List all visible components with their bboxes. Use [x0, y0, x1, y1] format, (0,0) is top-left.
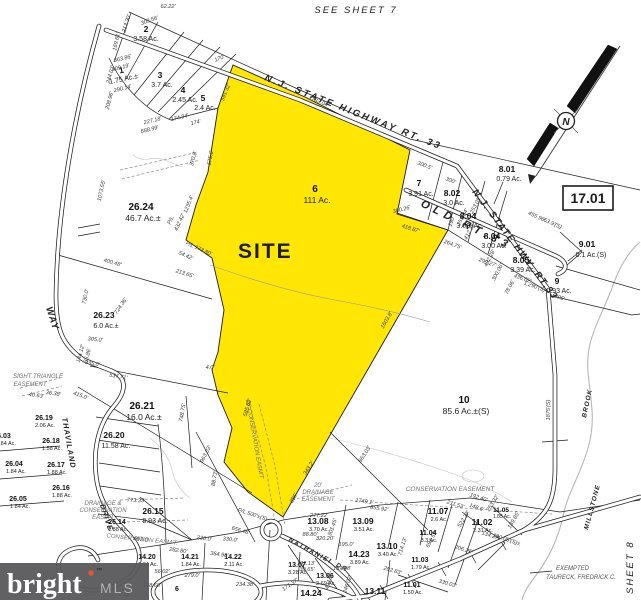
dim-label: 88.80': [302, 532, 318, 538]
parcel-p26-23-lot: 26.23: [93, 310, 115, 320]
parcel-p6-ac: 111 Ac.: [303, 195, 330, 205]
parcel-p26-05-ac: 1.84 Ac.: [10, 504, 30, 510]
drainage-cons-easement-label1: DRAINAGE &: [84, 501, 121, 507]
inset-box-17-01: 17.01: [563, 186, 613, 210]
parcel-p11-03-ac: 1.79 Ac.: [411, 565, 431, 571]
parcel-p8-05-lot: 8.05: [513, 255, 530, 265]
parcel-p26-19-ac: 2.06 Ac.: [35, 423, 55, 429]
parcel-p8-01-lot: 8.01: [499, 164, 516, 174]
parcel-p11-07-ac: 2.6 Ac.: [431, 517, 448, 523]
parcel-p26-04-lot: 26.04: [5, 461, 23, 468]
parcel-p5-lot: 5: [201, 93, 206, 103]
parcel-p11-03-lot: 11.03: [411, 557, 428, 564]
parcel-p13-10-lot: 13.10: [376, 541, 398, 551]
parcel-p14-23-ac: 3.89 Ac.: [350, 560, 370, 566]
parcel-p8-04b-ac: 3.00 Ac.: [481, 243, 506, 250]
inset-box-label: 17.01: [570, 190, 605, 206]
parcel-p14-22-ac: 2.11 Ac.: [224, 562, 244, 568]
parcel-p26-05-lot: 26.05: [9, 496, 27, 503]
dim-label: 56.02': [154, 569, 170, 575]
watermark-mls-text: MLS: [100, 580, 135, 596]
exempted-note-line1: EXEMPTED: [556, 566, 590, 572]
see-sheet-8-label: SEE SHEET 8: [625, 540, 636, 600]
parcel-p26-03-ac: 1.84 Ac.: [0, 441, 16, 447]
tax-map-page: N 17.01 SEE SHEET 7 SEE SHEET 8 SITE N.J…: [0, 0, 641, 600]
parcel-p13-10-ac: 3.40 Ac.: [378, 552, 398, 558]
parcel-p2-ac: 3.58 Ac.: [133, 36, 158, 43]
parcel-p11-05-lot: 11.05: [493, 507, 509, 514]
north-arrow-n-label: N: [562, 117, 570, 128]
dim-label: 4.0': [206, 365, 216, 371]
parcel-p26-16-lot: 26.16: [52, 485, 70, 492]
parcel-p5-ac: 2.4 Ac.: [194, 105, 215, 112]
parcel-p26-16-ac: 1.88 Ac.: [52, 493, 72, 499]
parcel-p26-18-lot: 26.18: [42, 438, 60, 445]
parcel-p8-02-lot: 8.02: [444, 188, 461, 198]
parcel-p26-17-lot: 26.17: [47, 462, 65, 469]
parcel-p26-04-ac: 1.84 Ac.: [6, 469, 26, 475]
drain20-easement-label1: 20': [313, 483, 323, 489]
watermark-brand-text: bright: [7, 569, 82, 600]
parcel-p11-05-ac: 1.85 Ac.: [493, 514, 511, 520]
parcel-p26-14-ac: 1.88 Ac.: [108, 527, 128, 533]
site-label: SITE: [238, 240, 293, 263]
parcel-p9-01-lot: 9.01: [579, 239, 596, 249]
parcel-p3-lot: 3: [158, 70, 163, 80]
sight-triangle-easement-label: SIGHT TRIANGLE: [13, 374, 64, 380]
parcel-p4-ac: 2.45 Ac.: [172, 97, 197, 104]
exempted-note-line2: TAURECK, FREDRICK C.: [546, 575, 616, 581]
parcel-p13-09-ac: 3.51 Ac.: [354, 527, 374, 533]
parcel-p6-lot: 6: [312, 184, 318, 195]
parcel-p10-lot: 10: [458, 395, 470, 406]
dim-label: 1875'(S): [546, 399, 552, 420]
parcel-p26-14-lot: 26.14: [108, 519, 126, 526]
parcel-p7-ac: 3.91 Ac.: [408, 191, 433, 198]
parcel-p26-17-ac: 1.88 Ac.: [47, 470, 67, 476]
dim-label: 62.22': [160, 4, 176, 10]
parcel-p7-lot: 7: [417, 178, 422, 188]
parcel-p26-15-lot: 26.15: [142, 506, 164, 516]
watermark-dot-icon: [88, 570, 94, 576]
brightmls-watermark: bright ™ MLS: [0, 563, 149, 600]
parcel-p9-lot: 9: [555, 276, 560, 286]
parcel-p26-15-ac: 8.93 Ac.: [142, 518, 167, 525]
parcel-p26-24-ac: 46.7 Ac.±: [125, 213, 161, 223]
parcel-p14-24-lot: 14.24: [300, 588, 322, 598]
parcel-p11-07-lot: 11.07: [428, 506, 449, 516]
parcel-p26-21-ac: 16.0 Ac.±: [126, 412, 162, 422]
parcel-p13-09-lot: 13.09: [352, 516, 374, 526]
parcel-p14-21-lot: 14.21: [181, 554, 199, 561]
dim-label: 277.22': [309, 513, 329, 519]
parcel-p26-21-lot: 26.21: [129, 401, 154, 412]
parcel-p4-lot: 4: [181, 85, 186, 95]
parcel-p11-01-lot: 11.01: [403, 582, 420, 589]
parcel-p8-01-ac: 0.79 Ac.: [496, 176, 521, 183]
tax-map: N 17.01 SEE SHEET 7 SEE SHEET 8 SITE N.J…: [0, 0, 641, 600]
parcel-p26-18-ac: 1.58 Ac.: [42, 446, 62, 452]
drain20-easement-label2: DRAINAGE: [302, 490, 334, 496]
parcel-p11-02-lot: 11.02: [472, 517, 493, 527]
parcel-p26-20-lot: 26.20: [103, 430, 125, 440]
drainage-cons-easement-label2: CONSERVATION: [79, 508, 127, 514]
parcel-p14-21-ac: 1.84 Ac.: [181, 562, 201, 568]
parcel-p9-01-ac: 0.1 Ac.(S): [576, 252, 607, 259]
parcel-p3-ac: 3.7 Ac.: [151, 82, 172, 89]
parcel-p11-01-ac: 1.50 Ac.: [403, 590, 423, 596]
parcel-p26-19-lot: 26.19: [35, 415, 53, 422]
parcel-p26-24-lot: 26.24: [128, 202, 153, 213]
parcel-p10-ac: 85.6 Ac.±(S): [443, 406, 490, 416]
parcel-p26-03-lot: 26.03: [0, 433, 11, 440]
parcel-p26-23-ac: 6.0 Ac.±: [93, 323, 118, 330]
parcel-p8-04b-lot: 8.04: [484, 231, 501, 241]
dim-label: 195.0': [338, 542, 354, 548]
watermark-tm: ™: [96, 567, 102, 574]
conservation-easement-label: CONSERVATION EASEMENT: [406, 486, 496, 493]
parcel-p8-02-ac: 3.0 Ac.: [443, 200, 464, 207]
dim-label: 157.08': [333, 566, 352, 572]
dim-label: 773.33': [127, 498, 146, 505]
drain20-easement-label3: EASEMENT: [301, 497, 335, 503]
dim-label: 234.38': [235, 582, 255, 588]
see-sheet-7-label: SEE SHEET 7: [314, 5, 397, 16]
parcel-p14-23-lot: 14.23: [348, 549, 370, 559]
parcel-p14-20-lot: 14.20: [138, 554, 156, 561]
parcel-p26-20-ac: 11.58 Ac.: [102, 443, 131, 450]
dim-label: 279.0': [183, 573, 200, 579]
dim-label: 39.65': [299, 567, 315, 573]
parcel-p13-11-lot: 13.11: [365, 586, 386, 596]
parcel-cul6-lot: 6: [175, 586, 179, 593]
sight-triangle-easement-label2: EASEMENT: [13, 382, 47, 388]
